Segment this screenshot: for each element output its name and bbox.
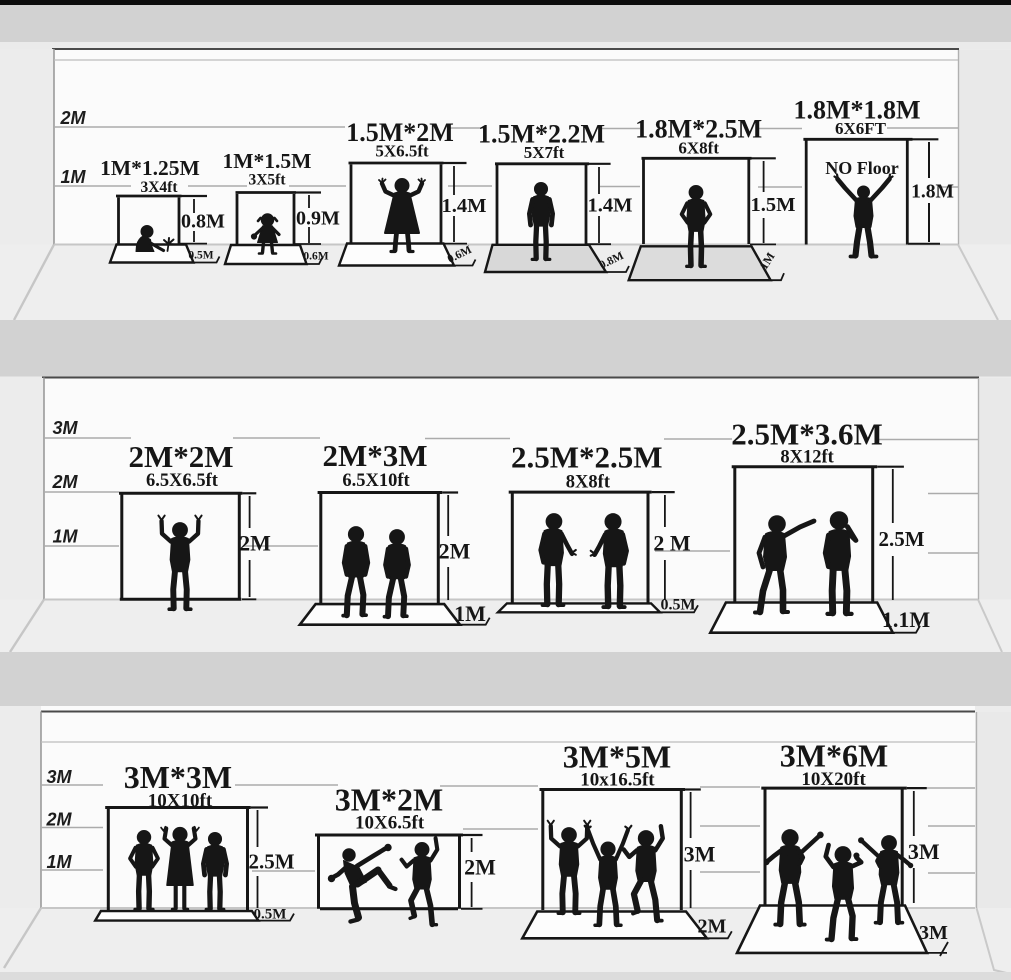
- svg-text:3M: 3M: [684, 842, 716, 867]
- svg-text:2.5M*2.5M: 2.5M*2.5M: [511, 440, 663, 475]
- svg-text:6.5X6.5ft: 6.5X6.5ft: [146, 471, 219, 491]
- svg-text:1M: 1M: [60, 167, 86, 187]
- svg-text:10x16.5ft: 10x16.5ft: [580, 769, 655, 790]
- svg-text:1.8M: 1.8M: [911, 182, 954, 203]
- svg-text:2.5M: 2.5M: [248, 850, 294, 874]
- svg-text:6X8ft: 6X8ft: [678, 139, 719, 158]
- svg-text:1.4M: 1.4M: [588, 195, 633, 217]
- svg-text:1M: 1M: [46, 852, 72, 872]
- svg-text:3M: 3M: [908, 839, 940, 864]
- svg-text:2M*3M: 2M*3M: [322, 438, 427, 473]
- svg-text:2M: 2M: [239, 531, 271, 556]
- svg-text:3X4ft: 3X4ft: [140, 179, 178, 196]
- svg-text:3X5ft: 3X5ft: [248, 172, 286, 189]
- svg-text:5X6.5ft: 5X6.5ft: [375, 142, 429, 161]
- svg-text:2 M: 2 M: [653, 531, 691, 556]
- svg-text:2M: 2M: [59, 108, 86, 128]
- svg-text:2M*2M: 2M*2M: [128, 439, 233, 474]
- svg-text:8X8ft: 8X8ft: [566, 473, 611, 493]
- svg-text:0.8M: 0.8M: [181, 211, 225, 233]
- svg-text:0.9M: 0.9M: [296, 208, 340, 230]
- svg-text:2M: 2M: [51, 472, 78, 492]
- svg-text:1M: 1M: [454, 601, 486, 626]
- svg-text:2.5M*3.6M: 2.5M*3.6M: [731, 416, 883, 451]
- svg-text:2M: 2M: [439, 539, 471, 564]
- svg-text:2M: 2M: [464, 855, 496, 880]
- svg-text:6.5X10ft: 6.5X10ft: [342, 471, 410, 491]
- svg-text:0.6M: 0.6M: [303, 251, 328, 263]
- svg-text:8X12ft: 8X12ft: [780, 448, 834, 468]
- svg-text:1M: 1M: [52, 527, 78, 547]
- svg-text:1.1M: 1.1M: [882, 607, 931, 632]
- svg-text:2M: 2M: [45, 810, 72, 830]
- svg-text:3M: 3M: [52, 418, 78, 438]
- svg-text:0.5M: 0.5M: [188, 250, 213, 262]
- svg-text:2M: 2M: [698, 915, 727, 937]
- svg-text:3M: 3M: [46, 767, 72, 787]
- svg-text:3M: 3M: [919, 922, 948, 944]
- svg-text:5X7ft: 5X7ft: [524, 143, 565, 162]
- svg-text:1M*1.25M: 1M*1.25M: [100, 156, 200, 180]
- svg-text:0.5M: 0.5M: [254, 906, 287, 922]
- svg-text:6X6FT: 6X6FT: [835, 119, 887, 138]
- svg-text:1M*1.5M: 1M*1.5M: [223, 149, 312, 173]
- svg-text:1.4M: 1.4M: [442, 195, 487, 217]
- svg-text:10X6.5ft: 10X6.5ft: [355, 813, 425, 834]
- svg-text:0.5M: 0.5M: [660, 597, 695, 614]
- svg-text:2.5M: 2.5M: [878, 527, 924, 551]
- svg-text:1.5M: 1.5M: [751, 194, 796, 216]
